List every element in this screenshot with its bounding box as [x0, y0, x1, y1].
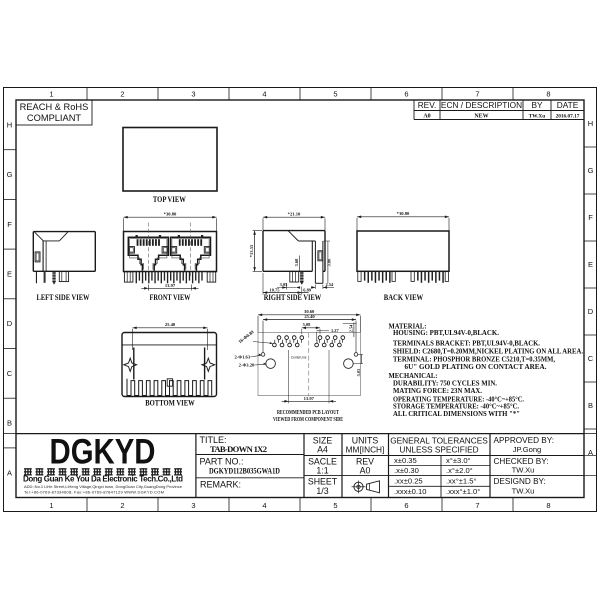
- svg-text:x±0.35: x±0.35: [394, 456, 417, 465]
- svg-text:REMARK:: REMARK:: [200, 479, 241, 489]
- svg-text:2-Φ1.63: 2-Φ1.63: [234, 354, 250, 359]
- svg-text:LEFT SIDE VIEW: LEFT SIDE VIEW: [37, 293, 90, 302]
- svg-text:2: 2: [120, 89, 124, 98]
- svg-text:*13.55: *13.55: [249, 244, 254, 257]
- svg-text:.xx°±1.5°: .xx°±1.5°: [446, 477, 477, 486]
- svg-text:MM[INCH]: MM[INCH]: [346, 445, 385, 455]
- svg-text:10.75: 10.75: [270, 287, 281, 292]
- svg-text:ALL CRITICAL DIMENSIONS WITH ": ALL CRITICAL DIMENSIONS WITH "*": [393, 409, 520, 418]
- svg-text:.x±0.30: .x±0.30: [394, 466, 419, 475]
- svg-text:BOTTOM VIEW: BOTTOM VIEW: [145, 399, 195, 408]
- svg-text:8: 8: [546, 501, 550, 510]
- svg-text:2.54: 2.54: [348, 324, 353, 332]
- svg-text:25.40: 25.40: [304, 314, 315, 319]
- svg-text:REACH & RoHS: REACH & RoHS: [20, 102, 89, 112]
- svg-text:COMPLIANT: COMPLIANT: [27, 113, 82, 123]
- svg-text:7: 7: [475, 89, 479, 98]
- svg-text:CHECKED BY:: CHECKED BY:: [494, 457, 549, 466]
- svg-text:5: 5: [333, 501, 337, 510]
- svg-text:25.40: 25.40: [165, 322, 176, 327]
- svg-text:4: 4: [262, 501, 266, 510]
- svg-text:.xxx±0.10: .xxx±0.10: [394, 487, 426, 496]
- svg-text:6.89: 6.89: [303, 287, 311, 292]
- svg-text:.xxx°±1.0°: .xxx°±1.0°: [446, 487, 480, 496]
- svg-text:3.80: 3.80: [326, 258, 331, 266]
- svg-text:NEW: NEW: [474, 113, 488, 119]
- svg-text:D: D: [7, 319, 13, 328]
- svg-text:B: B: [7, 419, 12, 428]
- svg-text:TW.Xu: TW.Xu: [512, 486, 535, 495]
- svg-text:2016.07.17: 2016.07.17: [556, 113, 580, 119]
- svg-text:1: 1: [49, 501, 53, 510]
- svg-text:RIGHT SIDE VIEW: RIGHT SIDE VIEW: [264, 293, 322, 302]
- svg-text:BACK VIEW: BACK VIEW: [384, 293, 424, 302]
- svg-text:TW.Xu: TW.Xu: [529, 113, 545, 119]
- svg-text:C: C: [588, 354, 594, 363]
- svg-text:2.54: 2.54: [325, 282, 333, 287]
- svg-text:H: H: [7, 120, 12, 129]
- svg-text:VIEWED FROM COMPONENT SIDE: VIEWED FROM COMPONENT SIDE: [273, 417, 343, 423]
- svg-text:3: 3: [191, 89, 195, 98]
- svg-text:13.97: 13.97: [304, 396, 315, 401]
- svg-text:*21.10: *21.10: [288, 212, 301, 217]
- svg-text:JP.Gong: JP.Gong: [513, 445, 542, 454]
- svg-text:3.05: 3.05: [356, 368, 361, 376]
- svg-text:D: D: [588, 307, 594, 316]
- svg-text:DGKYD: DGKYD: [50, 433, 156, 472]
- svg-text:3: 3: [191, 501, 195, 510]
- svg-text:A0: A0: [423, 113, 430, 119]
- svg-text:1: 1: [49, 89, 53, 98]
- svg-text:UNLESS SPECIFIED: UNLESS SPECIFIED: [399, 445, 478, 455]
- svg-text:A0: A0: [360, 466, 371, 476]
- svg-text:1:1: 1:1: [316, 466, 328, 476]
- svg-text:C: C: [7, 369, 13, 378]
- svg-text:7: 7: [475, 501, 479, 510]
- svg-text:x°±3.0°: x°±3.0°: [446, 456, 471, 465]
- svg-text:F: F: [588, 213, 593, 222]
- svg-text:ADD::No.1 LiHe Street,LiHeng V: ADD::No.1 LiHe Street,LiHeng Village,Qin…: [24, 484, 183, 489]
- svg-text:E: E: [588, 260, 593, 269]
- svg-text:ECN / DESCRIPTION: ECN / DESCRIPTION: [441, 100, 522, 110]
- svg-text:RECOMMENDED PCB LAYOUT: RECOMMENDED PCB LAYOUT: [277, 410, 339, 416]
- svg-text:6: 6: [404, 501, 408, 510]
- svg-text:DATE: DATE: [557, 100, 579, 110]
- svg-text:.x°±2.0°: .x°±2.0°: [446, 466, 473, 475]
- svg-text:DESIGND BY:: DESIGND BY:: [494, 477, 546, 486]
- svg-text:6U" GOLD PLATING ON CONTACT AR: 6U" GOLD PLATING ON CONTACT AREA.: [405, 362, 547, 371]
- svg-text:5: 5: [333, 89, 337, 98]
- svg-text:6: 6: [404, 89, 408, 98]
- svg-text:A4: A4: [317, 445, 328, 455]
- svg-text:E: E: [7, 269, 12, 278]
- svg-text:8: 8: [546, 89, 550, 98]
- svg-text:H: H: [588, 119, 593, 128]
- svg-text:BY: BY: [531, 100, 543, 110]
- svg-text:HOUSING: PBT,UL94V-0,BLACK.: HOUSING: PBT,UL94V-0,BLACK.: [393, 328, 499, 337]
- svg-text:TOP VIEW: TOP VIEW: [153, 195, 186, 204]
- svg-text:Tel:+86-0769-87334608; Fax:+86: Tel:+86-0769-87334608; Fax:+86-0769-8784…: [24, 490, 164, 495]
- svg-text:.xx±0.25: .xx±0.25: [394, 477, 423, 486]
- svg-text:Dong Guan Ke You Da Electronic: Dong Guan Ke You Da Electronic Tech.Co.,…: [23, 475, 183, 484]
- svg-text:5.08: 5.08: [303, 322, 311, 327]
- svg-text:B: B: [588, 401, 593, 410]
- svg-text:F: F: [7, 220, 12, 229]
- svg-text:3.05: 3.05: [280, 282, 288, 287]
- svg-text:2: 2: [120, 501, 124, 510]
- svg-text:FRONT VIEW: FRONT VIEW: [150, 293, 191, 302]
- svg-text:1.27: 1.27: [331, 328, 339, 333]
- svg-text:1/3: 1/3: [316, 486, 328, 496]
- svg-text:13.97: 13.97: [165, 283, 176, 288]
- svg-text:3.68: 3.68: [294, 258, 299, 266]
- svg-text:TAB-DOWN 1X2: TAB-DOWN 1X2: [210, 444, 267, 454]
- svg-text:*30.80: *30.80: [164, 212, 177, 217]
- svg-text:G: G: [588, 166, 594, 175]
- svg-text:G: G: [7, 170, 13, 179]
- svg-text:TW.Xu: TW.Xu: [512, 466, 535, 475]
- svg-text:APPROVED BY:: APPROVED BY:: [494, 436, 555, 445]
- svg-text:DGKYD112B035GWA1D: DGKYD112B035GWA1D: [209, 466, 280, 476]
- svg-text:*30.80: *30.80: [397, 211, 410, 216]
- svg-text:4: 4: [262, 89, 266, 98]
- svg-text:CenterLine: CenterLine: [291, 355, 307, 359]
- svg-text:2-Φ3.20: 2-Φ3.20: [239, 362, 255, 367]
- svg-text:A: A: [7, 468, 12, 477]
- svg-text:REV.: REV.: [418, 100, 437, 110]
